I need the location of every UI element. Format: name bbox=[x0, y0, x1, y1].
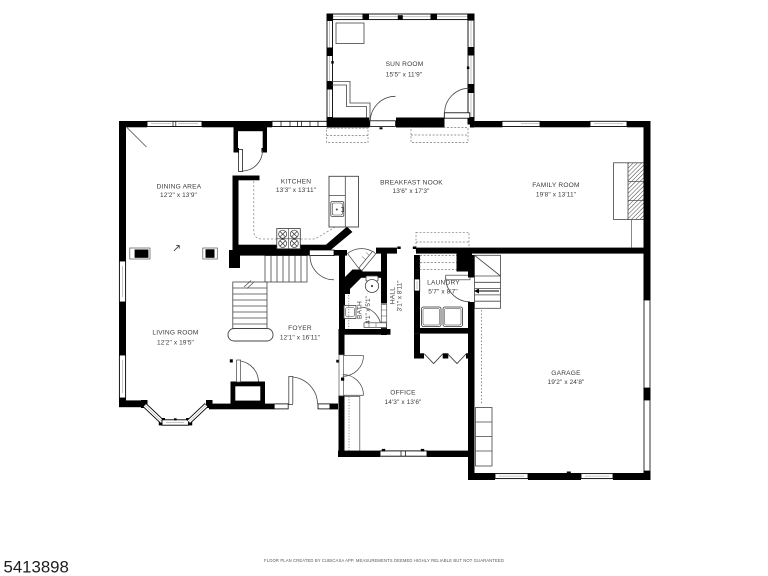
svg-text:12'2" x 19'5": 12'2" x 19'5" bbox=[157, 340, 195, 347]
svg-text:19'2" x 24'8": 19'2" x 24'8" bbox=[548, 379, 586, 386]
svg-text:OFFICE: OFFICE bbox=[390, 390, 416, 397]
svg-text:4'1" x 5'1": 4'1" x 5'1" bbox=[365, 296, 372, 324]
svg-text:5413898: 5413898 bbox=[4, 558, 69, 576]
svg-text:FOYER: FOYER bbox=[288, 325, 312, 332]
svg-text:15'5" x 11'9": 15'5" x 11'9" bbox=[386, 72, 423, 79]
svg-text:14'3" x 13'6": 14'3" x 13'6" bbox=[385, 399, 423, 406]
svg-text:DINING AREA: DINING AREA bbox=[157, 184, 202, 191]
svg-text:FLOOR PLAN CREATED BY CUBICASA: FLOOR PLAN CREATED BY CUBICASA APP. MEAS… bbox=[264, 558, 504, 563]
svg-text:FAMILY ROOM: FAMILY ROOM bbox=[532, 182, 579, 189]
svg-text:12'1" x 16'11": 12'1" x 16'11" bbox=[280, 335, 321, 342]
svg-text:3'1" x 8'11": 3'1" x 8'11" bbox=[397, 280, 404, 311]
svg-text:5'7" x 8'7": 5'7" x 8'7" bbox=[428, 289, 458, 296]
svg-text:SUN ROOM: SUN ROOM bbox=[386, 61, 424, 68]
svg-text:BREAKFAST NOOK: BREAKFAST NOOK bbox=[380, 180, 443, 187]
svg-text:BATH: BATH bbox=[357, 301, 364, 319]
svg-text:19'8" x 13'11": 19'8" x 13'11" bbox=[536, 191, 577, 198]
svg-text:LIVING ROOM: LIVING ROOM bbox=[152, 330, 198, 337]
svg-text:GARAGE: GARAGE bbox=[551, 370, 581, 377]
svg-text:KITCHEN: KITCHEN bbox=[281, 179, 311, 186]
svg-text:12'2" x 13'9": 12'2" x 13'9" bbox=[160, 192, 198, 199]
svg-text:HALL: HALL bbox=[390, 287, 397, 304]
svg-text:LAUNDRY: LAUNDRY bbox=[427, 280, 460, 287]
svg-text:13'6" x 17'3": 13'6" x 17'3" bbox=[393, 188, 431, 195]
svg-text:13'3" x 13'11": 13'3" x 13'11" bbox=[276, 187, 317, 194]
